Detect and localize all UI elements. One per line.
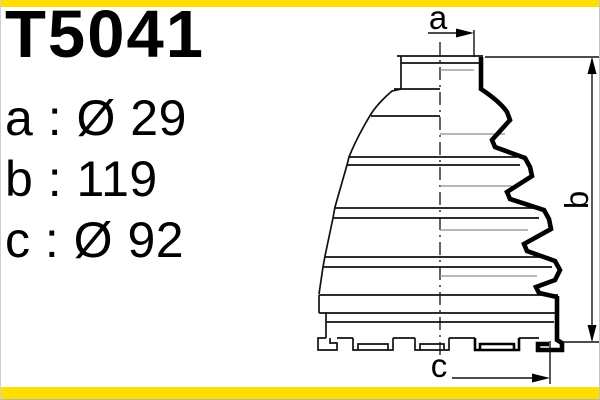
- boot-section-thick: [475, 57, 562, 350]
- dimension-row-b: b : 119: [5, 149, 187, 210]
- dim-label-a: a: [429, 0, 448, 36]
- catalog-image: T5041 a : Ø 29 b : 119 c : Ø 92: [0, 0, 600, 400]
- dim-label-b: b: [558, 191, 595, 209]
- arrow-right-icon: [532, 374, 550, 383]
- dim-label-c: c: [431, 347, 448, 384]
- dimension-row-a: a : Ø 29: [5, 88, 187, 149]
- arrow-down-icon: [588, 325, 597, 342]
- dimension-list: a : Ø 29 b : 119 c : Ø 92: [5, 88, 187, 271]
- dimension-c: [452, 341, 550, 384]
- arrow-right-icon: [456, 29, 474, 38]
- cv-boot-technical-drawing: a b c: [301, 0, 600, 400]
- arrow-up-icon: [588, 57, 597, 74]
- part-number: T5041: [5, 2, 205, 68]
- dimension-row-c: c : Ø 92: [5, 210, 187, 271]
